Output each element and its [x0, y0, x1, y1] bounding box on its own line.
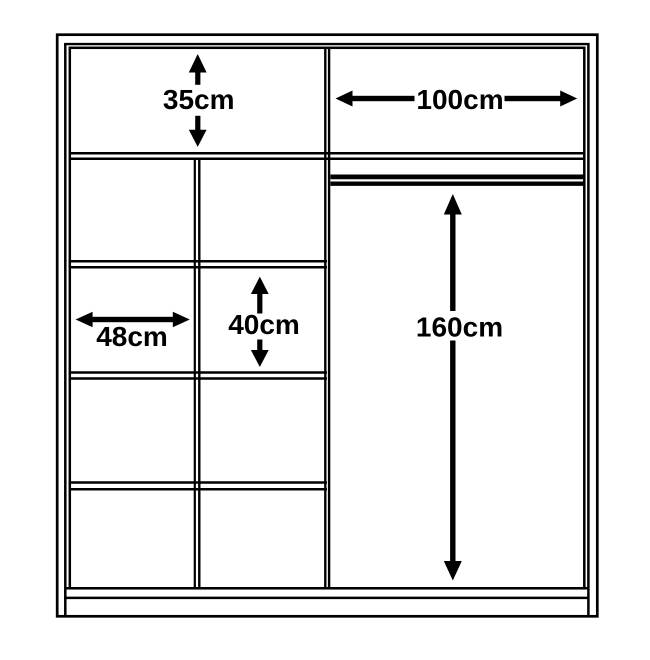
- svg-text:40cm: 40cm: [228, 309, 300, 340]
- svg-text:48cm: 48cm: [96, 321, 168, 352]
- svg-text:100cm: 100cm: [416, 84, 503, 115]
- svg-text:35cm: 35cm: [163, 84, 235, 115]
- svg-text:160cm: 160cm: [416, 312, 503, 343]
